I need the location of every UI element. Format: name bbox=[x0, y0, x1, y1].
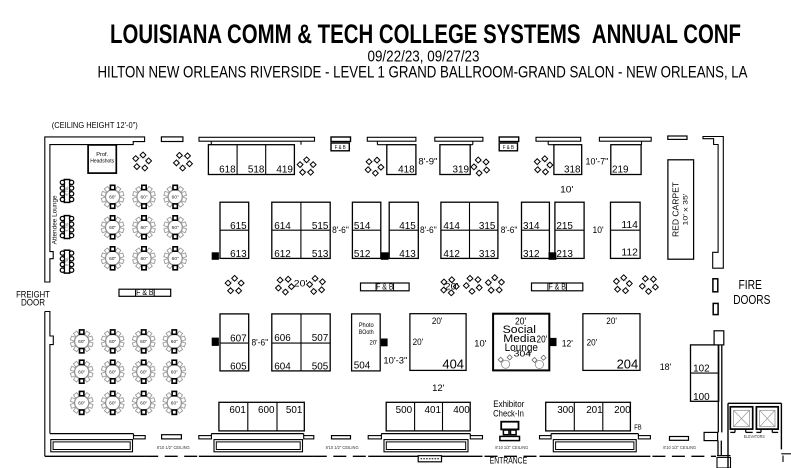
svg-text:20': 20' bbox=[294, 278, 308, 289]
svg-text:12': 12' bbox=[562, 338, 573, 349]
svg-text:605: 605 bbox=[230, 361, 247, 372]
svg-text:60": 60" bbox=[171, 370, 178, 376]
svg-text:315: 315 bbox=[479, 221, 496, 232]
svg-text:60": 60" bbox=[78, 370, 85, 376]
svg-text:8'10 1/2" CEILING: 8'10 1/2" CEILING bbox=[495, 445, 528, 450]
svg-text:401: 401 bbox=[425, 405, 442, 416]
svg-text:20': 20' bbox=[587, 338, 598, 349]
svg-text:60": 60" bbox=[109, 256, 116, 262]
svg-text:60": 60" bbox=[140, 339, 147, 345]
svg-text:60": 60" bbox=[171, 401, 178, 407]
svg-text:414: 414 bbox=[443, 221, 460, 232]
svg-text:F & B: F & B bbox=[548, 282, 566, 291]
svg-text:318: 318 bbox=[564, 164, 581, 175]
svg-text:60": 60" bbox=[109, 401, 116, 407]
svg-text:Photo: Photo bbox=[359, 322, 374, 329]
svg-text:600: 600 bbox=[258, 405, 275, 416]
svg-text:513: 513 bbox=[312, 249, 329, 260]
svg-text:8'-6": 8'-6" bbox=[420, 225, 437, 236]
svg-text:419: 419 bbox=[276, 164, 293, 175]
svg-text:RED CARPET: RED CARPET bbox=[672, 182, 681, 237]
svg-text:60": 60" bbox=[140, 401, 147, 407]
svg-text:213: 213 bbox=[556, 249, 573, 260]
svg-text:400: 400 bbox=[453, 405, 470, 416]
svg-text:60": 60" bbox=[140, 195, 147, 201]
svg-text:Check-In: Check-In bbox=[493, 408, 524, 419]
svg-text:60": 60" bbox=[78, 401, 85, 407]
svg-text:215: 215 bbox=[556, 221, 573, 232]
svg-text:Headshots: Headshots bbox=[90, 159, 114, 165]
svg-text:514: 514 bbox=[354, 221, 371, 232]
svg-text:F & B: F & B bbox=[376, 282, 394, 291]
svg-text:501: 501 bbox=[286, 405, 303, 416]
svg-text:10' x 35': 10' x 35' bbox=[683, 194, 690, 226]
svg-text:60": 60" bbox=[78, 339, 85, 345]
svg-text:606: 606 bbox=[274, 333, 291, 344]
svg-text:500: 500 bbox=[396, 405, 413, 416]
svg-text:HILTON NEW ORLEANS RIVERSIDE -: HILTON NEW ORLEANS RIVERSIDE - LEVEL 1 G… bbox=[98, 62, 749, 81]
svg-text:60": 60" bbox=[109, 195, 116, 201]
svg-text:413: 413 bbox=[399, 249, 416, 260]
svg-text:304: 304 bbox=[514, 348, 532, 358]
svg-text:204: 204 bbox=[617, 356, 639, 371]
svg-text:505: 505 bbox=[312, 361, 329, 372]
svg-text:18': 18' bbox=[660, 362, 672, 373]
svg-text:8'10 1/2" CEILING: 8'10 1/2" CEILING bbox=[326, 445, 359, 450]
svg-text:8' TBL: 8' TBL bbox=[65, 186, 69, 195]
svg-text:114: 114 bbox=[621, 220, 638, 231]
svg-text:607: 607 bbox=[230, 333, 247, 344]
svg-text:60": 60" bbox=[172, 225, 179, 231]
svg-text:60": 60" bbox=[109, 225, 116, 231]
svg-text:60": 60" bbox=[140, 370, 147, 376]
svg-text:615: 615 bbox=[230, 221, 247, 232]
svg-text:60": 60" bbox=[140, 256, 147, 262]
svg-text:8'-9": 8'-9" bbox=[418, 156, 437, 167]
svg-text:313: 313 bbox=[479, 249, 496, 260]
svg-text:10'-7": 10'-7" bbox=[586, 156, 609, 167]
svg-text:20': 20' bbox=[606, 316, 617, 327]
svg-text:Prof.: Prof. bbox=[96, 152, 108, 158]
svg-text:613: 613 bbox=[230, 249, 247, 260]
svg-text:8'10 1/2" CEILING: 8'10 1/2" CEILING bbox=[157, 445, 190, 450]
svg-text:60": 60" bbox=[140, 225, 147, 231]
svg-text:DOOR: DOOR bbox=[21, 298, 45, 309]
svg-text:ELEVATORS: ELEVATORS bbox=[744, 434, 765, 439]
svg-text:10': 10' bbox=[474, 338, 486, 349]
svg-text:20': 20' bbox=[432, 316, 443, 327]
svg-text:507: 507 bbox=[312, 333, 329, 344]
svg-text:20': 20' bbox=[370, 339, 378, 346]
svg-text:F & B: F & B bbox=[335, 145, 347, 151]
svg-text:518: 518 bbox=[248, 164, 265, 175]
svg-text:LOUISIANA COMM & TECH COLLEGE: LOUISIANA COMM & TECH COLLEGE SYSTEMS AN… bbox=[110, 19, 741, 49]
svg-text:60": 60" bbox=[109, 370, 116, 376]
svg-text:512: 512 bbox=[354, 249, 371, 260]
svg-text:8' TBL: 8' TBL bbox=[65, 257, 69, 266]
svg-text:612: 612 bbox=[274, 249, 291, 260]
svg-text:60": 60" bbox=[172, 256, 179, 262]
svg-text:8'-6": 8'-6" bbox=[252, 337, 269, 348]
svg-text:604: 604 bbox=[274, 361, 291, 372]
svg-text:60": 60" bbox=[172, 195, 179, 201]
svg-text:8'-6": 8'-6" bbox=[332, 225, 349, 236]
svg-text:415: 415 bbox=[399, 221, 416, 232]
svg-text:20': 20' bbox=[413, 337, 424, 348]
svg-text:60": 60" bbox=[109, 339, 116, 345]
svg-text:601: 601 bbox=[229, 405, 246, 416]
svg-text:Attendee Lounge: Attendee Lounge bbox=[52, 195, 59, 244]
svg-text:8' TBL: 8' TBL bbox=[65, 222, 69, 231]
svg-text:319: 319 bbox=[453, 164, 470, 175]
svg-text:200: 200 bbox=[614, 405, 631, 416]
svg-text:219: 219 bbox=[612, 164, 629, 175]
svg-text:8'-6": 8'-6" bbox=[501, 225, 518, 236]
svg-text:60": 60" bbox=[171, 339, 178, 345]
svg-text:614: 614 bbox=[274, 221, 291, 232]
svg-text:201: 201 bbox=[586, 405, 603, 416]
svg-text:412: 412 bbox=[443, 249, 460, 260]
svg-text:418: 418 bbox=[398, 164, 415, 175]
svg-text:ENTRANCE: ENTRANCE bbox=[490, 456, 528, 467]
svg-text:10'-3": 10'-3" bbox=[383, 355, 407, 366]
svg-text:504: 504 bbox=[354, 360, 371, 371]
svg-text:404: 404 bbox=[442, 356, 464, 371]
svg-text:314: 314 bbox=[523, 221, 540, 232]
svg-text:F & B: F & B bbox=[503, 145, 515, 151]
svg-text:312: 312 bbox=[523, 249, 540, 260]
svg-text:FB: FB bbox=[634, 423, 642, 432]
svg-text:(CEILING HEIGHT 12'-0"): (CEILING HEIGHT 12'-0") bbox=[52, 120, 138, 130]
svg-text:12': 12' bbox=[432, 383, 445, 394]
svg-text:BOoth: BOoth bbox=[359, 329, 374, 336]
svg-text:102: 102 bbox=[693, 363, 710, 374]
svg-text:F & B: F & B bbox=[136, 288, 154, 297]
svg-text:10': 10' bbox=[593, 225, 604, 236]
svg-text:8'10 1/2" CEILING: 8'10 1/2" CEILING bbox=[663, 445, 696, 450]
svg-text:20': 20' bbox=[445, 281, 459, 292]
svg-text:618: 618 bbox=[219, 164, 236, 175]
svg-text:20': 20' bbox=[537, 334, 548, 346]
svg-text:300: 300 bbox=[557, 405, 574, 416]
svg-text:515: 515 bbox=[312, 221, 329, 232]
svg-text:100: 100 bbox=[693, 392, 710, 403]
svg-text:112: 112 bbox=[621, 248, 638, 259]
svg-text:DOORS: DOORS bbox=[733, 292, 770, 307]
svg-text:10': 10' bbox=[560, 184, 573, 195]
svg-text:FIRE: FIRE bbox=[738, 277, 762, 292]
